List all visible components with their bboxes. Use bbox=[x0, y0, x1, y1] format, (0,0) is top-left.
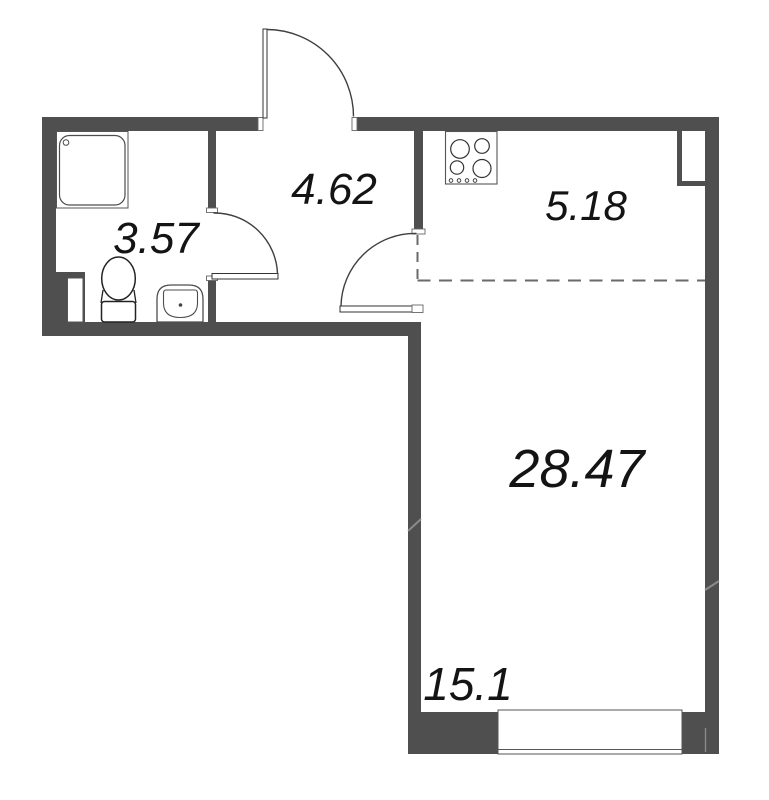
floor-plan: 3.57 4.62 5.18 28.47 15.1 bbox=[0, 0, 769, 800]
wall-top-left bbox=[42, 117, 258, 131]
bathroom-area-label: 3.57 bbox=[113, 214, 200, 263]
room-door-arc bbox=[341, 233, 417, 306]
bathroom-door-icon bbox=[207, 208, 279, 281]
sink-drain bbox=[179, 303, 183, 307]
wall-hall-partition-upper bbox=[414, 131, 423, 229]
floor-plan-svg: 3.57 4.62 5.18 28.47 15.1 bbox=[0, 0, 769, 800]
kitchen-zone-area-label: 5.18 bbox=[545, 182, 627, 229]
room-jamb-bottom bbox=[412, 305, 423, 313]
entrance-jamb-right bbox=[352, 118, 357, 131]
shower-icon bbox=[57, 132, 129, 209]
entrance-door-leaf bbox=[263, 29, 267, 118]
shaft-niche bbox=[68, 278, 84, 322]
living-room-area-label: 28.47 bbox=[508, 439, 646, 499]
wall-bottom-upper-section bbox=[42, 322, 421, 336]
niche-wall-bottom bbox=[677, 181, 705, 186]
wall-room-left bbox=[408, 322, 421, 754]
living-zone-area-label: 15.1 bbox=[423, 658, 513, 710]
toilet-bowl bbox=[102, 257, 136, 300]
sink-icon bbox=[157, 285, 203, 322]
wall-right bbox=[705, 117, 719, 754]
wall-bottom-left-part bbox=[408, 712, 498, 754]
toilet-tank bbox=[102, 302, 136, 323]
niche-wall-left bbox=[677, 131, 682, 186]
wall-top-right bbox=[357, 117, 719, 131]
room-door-leaf bbox=[340, 306, 417, 312]
bathroom-jamb-top bbox=[207, 208, 218, 213]
entrance-door-arc bbox=[267, 30, 354, 117]
entrance-jamb-left bbox=[258, 118, 263, 131]
stove-icon bbox=[446, 132, 498, 185]
toilet-icon bbox=[101, 257, 136, 322]
shower-tray bbox=[60, 136, 126, 206]
wall-left-upper bbox=[42, 117, 56, 336]
wall-bath-partition-upper bbox=[208, 131, 216, 209]
hallway-area-label: 4.62 bbox=[291, 165, 377, 214]
bathroom-door-arc bbox=[214, 213, 278, 274]
entrance-door-icon bbox=[258, 29, 357, 131]
bathroom-door-leaf bbox=[212, 274, 278, 280]
window-opening bbox=[498, 710, 682, 754]
stove-body bbox=[446, 132, 498, 185]
wall-bath-partition-lower bbox=[208, 279, 216, 322]
area-labels: 3.57 4.62 5.18 28.47 15.1 bbox=[113, 165, 646, 710]
zone-divider bbox=[418, 235, 706, 281]
wall-bottom-right-part bbox=[682, 712, 719, 754]
room-door-icon bbox=[340, 229, 425, 313]
window-symbol bbox=[498, 710, 682, 754]
